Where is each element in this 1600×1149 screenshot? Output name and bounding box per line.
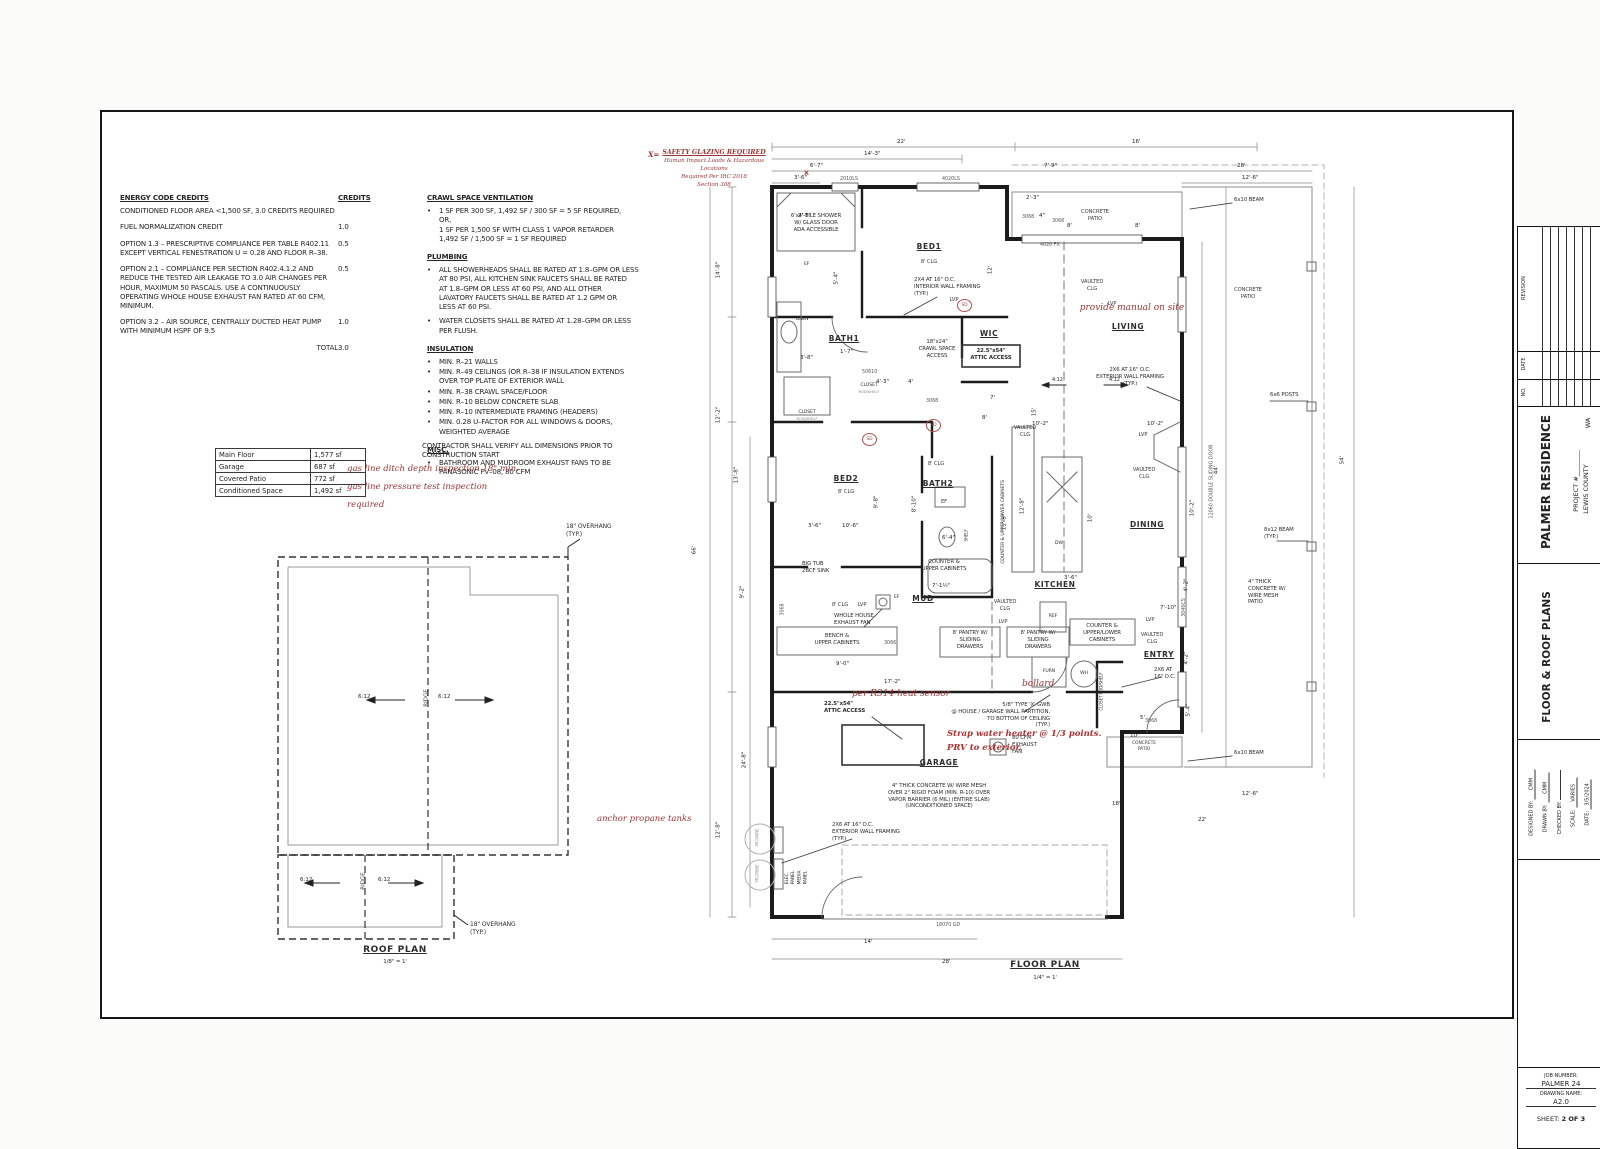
energy-code-credits-block: ENERGY CODE CREDITS CREDITS CONDITIONED …: [120, 194, 400, 360]
dimension-label: 8'-10": [911, 496, 917, 513]
dimension-label: 66': [691, 546, 697, 555]
energy-row: FUEL NORMALIZATION CREDIT 1.0: [120, 223, 400, 232]
sheet-value: 2 OF 3: [1562, 1115, 1586, 1123]
dimension-label: 22': [1198, 817, 1207, 823]
drawing-name-label: DRAWING NAME:: [1518, 1091, 1600, 1097]
dimension-label: 10': [1087, 514, 1093, 523]
area-label: Covered Patio: [216, 473, 311, 484]
dimension-label: 3'-6": [808, 523, 821, 529]
checked-by-value: [1560, 770, 1561, 800]
energy-row-text: OPTION 2.1 – COMPLIANCE PER SECTION R402…: [120, 265, 338, 311]
window-door-tag: 4020 FX: [1040, 243, 1060, 248]
dimension-label: 8': [1135, 223, 1140, 229]
date-value: 3/5/2024: [1585, 779, 1592, 809]
dimension-label: 10': [1130, 733, 1139, 739]
plumbing-title: PLUMBING: [427, 253, 677, 262]
revision-table-line: [1542, 227, 1543, 406]
titleblock-divider: [1518, 739, 1600, 740]
designed-by-label: DESIGNED BY:: [1529, 801, 1535, 836]
dimension-label: 4'-2": [1184, 578, 1190, 591]
dimension-label: 16': [1132, 139, 1141, 145]
smoke-detector-mark: SD: [862, 433, 877, 446]
window-door-tag: 3068: [1145, 719, 1157, 724]
insulation-item: MIN. R–10 INTERMEDIATE FRAMING (HEADERS): [439, 408, 598, 417]
table-row: Main Floor 1,577 sf: [216, 449, 365, 461]
dimension-label: 12'-2": [715, 407, 721, 424]
dimension-label: 4': [908, 379, 913, 385]
insulation-title: INSULATION: [427, 345, 677, 354]
energy-row-text: OPTION 3.2 – AIR SOURCE, CENTRALLY DUCTE…: [120, 318, 338, 336]
contractor-note-text: CONTRACTOR SHALL VERIFY ALL DIMENSIONS P…: [422, 442, 612, 459]
dimension-label: 6'-4": [942, 535, 955, 541]
bullet-marker: •: [427, 266, 439, 312]
gas-line-note-3: required: [347, 500, 384, 510]
bullet-marker: •: [427, 207, 439, 244]
energy-row: OPTION 3.2 – AIR SOURCE, CENTRALLY DUCTE…: [120, 318, 400, 336]
energy-row: OPTION 2.1 – COMPLIANCE PER SECTION R402…: [120, 265, 400, 311]
dimension-label: 12'-8": [1019, 498, 1025, 515]
revision-table-line: [1590, 227, 1591, 406]
drawing-name-value: A2.0: [1526, 1098, 1596, 1107]
checked-by-row: CHECKED BY:: [1557, 750, 1563, 854]
safety-glazing-x: X=: [648, 150, 659, 159]
revision-table-line: [1574, 227, 1575, 406]
window-door-tag: 3040CS: [1182, 598, 1187, 617]
job-number-value: PALMER 24: [1526, 1080, 1596, 1089]
dimension-label: 14'-8": [715, 262, 721, 279]
bullet-marker: •: [427, 418, 439, 436]
dimension-label: 3'-8": [800, 355, 813, 361]
roof-slope-label: 6:12: [378, 877, 390, 883]
roof-slope-label: 6:12: [300, 877, 312, 883]
roof-slope-label: 6:12: [358, 694, 370, 700]
dimension-label: 2'-8": [798, 213, 811, 219]
titleblock-divider: [1518, 1067, 1600, 1068]
bullet-marker: •: [427, 398, 439, 407]
dimension-label: 3'-6": [1064, 575, 1077, 581]
dimension-label: 10'-6": [842, 523, 859, 529]
smoke-detector-mark: SD: [926, 419, 941, 432]
bullet-marker: •: [427, 317, 439, 335]
dimension-layer: 22'16'14'-3"6'-7"7'-9"28'3'-6"12'-6"2'-3…: [692, 127, 1372, 997]
code-notes-block: CRAWL SPACE VENTILATION • 1 SF PER 300 S…: [427, 194, 677, 482]
window-door-tag: 3068: [926, 399, 938, 404]
drawn-by-label: DRAWN BY:: [1543, 804, 1549, 832]
floor-plan-scale: 1/4" = 1': [1033, 975, 1057, 982]
project-name: PALMER RESIDENCE: [1539, 407, 1553, 557]
energy-total-value: 3.0: [338, 344, 374, 353]
dimension-label: 18': [1112, 801, 1121, 807]
window-door-tag: 4020LS: [942, 177, 960, 182]
title-block: REVISION DATE NO. PALMER RESIDENCE PROJE…: [1517, 226, 1600, 1149]
dimension-label: 5'-4": [1186, 703, 1192, 716]
insulation-item: MIN. R–21 WALLS: [439, 358, 498, 367]
energy-row-text: CONDITIONED FLOOR AREA <1,500 SF, 3.0 CR…: [120, 207, 338, 216]
window-door-tag: 3068: [1022, 215, 1034, 220]
dimension-label: 15': [1031, 408, 1037, 417]
roof-plan: 6:12 6:12 RIDGE 6:12 6:12 RIDGE 18" OVER…: [270, 517, 600, 987]
energy-row-text: OPTION 1.3 – PRESCRIPTIVE COMPLIANCE PER…: [120, 240, 338, 258]
scale-value: VARIES: [1571, 778, 1578, 808]
revision-table-line: [1558, 227, 1559, 406]
smoke-detector-mark: SD: [957, 299, 972, 312]
dimension-label: 28': [1237, 163, 1246, 169]
area-table: Main Floor 1,577 sf Garage 687 sf Covere…: [215, 448, 366, 497]
contractor-note: CONTRACTOR SHALL VERIFY ALL DIMENSIONS P…: [422, 442, 612, 460]
credits-column-header: CREDITS: [338, 194, 371, 203]
energy-row: OPTION 1.3 – PRESCRIPTIVE COMPLIANCE PER…: [120, 240, 400, 258]
floor-plan: BED1 8' CLG LVP BATH1 WIC 22.5"x54" ATTI…: [692, 127, 1372, 997]
date-row: DATE: 3/5/2024: [1585, 751, 1592, 855]
county-label: LEWIS COUNTY: [1582, 449, 1590, 529]
date-column-header: DATE: [1521, 352, 1527, 376]
dimension-label: 8': [1067, 223, 1072, 229]
titleblock-divider: [1518, 563, 1600, 564]
drawing-sheet: ENERGY CODE CREDITS CREDITS CONDITIONED …: [100, 110, 1514, 1019]
state-label: WA: [1584, 411, 1592, 435]
dimension-label: 7'-9": [1044, 163, 1057, 169]
safety-glazing-x-mark: X: [804, 169, 809, 177]
table-row: Garage 687 sf: [216, 461, 365, 473]
dimension-label: 17'-2": [884, 679, 901, 685]
dimension-label: 12': [987, 266, 993, 275]
sheet-number: SHEET: 2 OF 3: [1518, 1115, 1600, 1123]
dimension-label: 14': [864, 939, 873, 945]
window-door-tag: 2010LS: [840, 177, 858, 182]
bullet-marker: •: [427, 358, 439, 367]
insulation-item: MIN. R–10 BELOW CONCRETE SLAB: [439, 398, 558, 407]
project-number: PROJECT #________: [1572, 411, 1580, 551]
area-label: Garage: [216, 461, 311, 472]
dimension-label: 10'-2": [1147, 421, 1164, 427]
dimension-label: 11'-8": [1001, 514, 1007, 531]
energy-row: CONDITIONED FLOOR AREA <1,500 SF, 3.0 CR…: [120, 207, 400, 216]
revision-table-line: [1518, 379, 1600, 380]
energy-row-credit: [338, 207, 374, 216]
insulation-item: MIN. R–38 CRAWL SPACE/FLOOR: [439, 388, 547, 397]
dimension-label: 5'-4": [834, 271, 840, 284]
insulation-item: MIN. 0.28 U–FACTOR FOR ALL WINDOWS & DOO…: [439, 418, 612, 436]
energy-credits-title: ENERGY CODE CREDITS: [120, 194, 338, 203]
date-label: DATE:: [1585, 811, 1591, 826]
area-label: Main Floor: [216, 449, 311, 460]
roof-ridge-label: RIDGE: [361, 872, 367, 889]
window-door-tag: 50610: [862, 370, 877, 375]
dimension-label: 4'-3": [876, 379, 889, 385]
energy-row-credit: 1.0: [338, 318, 374, 336]
dimension-label: 22': [897, 139, 906, 145]
dimension-label: 6'-7": [810, 163, 823, 169]
revision-table-line: [1550, 227, 1551, 406]
sheet-label: SHEET:: [1537, 1115, 1560, 1123]
plumbing-item: WATER CLOSETS SHALL BE RATED AT 1.28–GPM…: [439, 317, 631, 335]
dimension-label: 54': [1339, 456, 1345, 465]
revision-table-line: [1582, 227, 1583, 406]
roof-plan-title: ROOF PLAN: [363, 945, 427, 956]
dimension-label: 9'-2": [740, 585, 746, 598]
bullet-marker: •: [427, 388, 439, 397]
dimension-label: 9'-0": [836, 661, 849, 667]
roof-overhang-note: 18" OVERHANG (TYP.): [470, 921, 516, 936]
drawn-by-value: CMM: [1543, 773, 1550, 803]
energy-row-credit: 1.0: [338, 223, 374, 232]
floor-plan-title: FLOOR PLAN: [1010, 960, 1080, 971]
window-door-tag: 3068: [1052, 219, 1064, 224]
gas-line-note-1: gas line ditch depth inspection 18" min.: [347, 464, 519, 474]
drawn-by-row: DRAWN BY: CMM: [1543, 751, 1550, 855]
plumbing-item: ALL SHOWERHEADS SHALL BE RATED AT 1.8–GP…: [439, 266, 639, 312]
dimension-label: 1'-7": [840, 349, 853, 355]
dimension-label: 14'-3": [864, 151, 881, 157]
sheet-title: FLOOR & ROOF PLANS: [1541, 582, 1553, 732]
dimension-label: 7': [990, 395, 995, 401]
bullet-marker: •: [427, 368, 439, 386]
dimension-label: 7'-10": [1160, 605, 1177, 611]
crawl-item: 1 SF PER 300 SF, 1,492 SF / 300 SF = 5 S…: [439, 207, 621, 244]
dimension-label: 12'-8": [715, 822, 721, 839]
table-row: Covered Patio 772 sf: [216, 473, 365, 485]
scale-row: SCALE: VARIES: [1571, 751, 1578, 855]
area-value: 1,577 sf: [311, 449, 365, 460]
dimension-label: 28': [942, 959, 951, 965]
dimension-label: 13'-8": [733, 467, 739, 484]
energy-total-label: TOTAL: [120, 344, 338, 353]
roof-overhang-note: 18" OVERHANG (TYP.): [566, 523, 612, 538]
roof-plan-scale: 1/8" = 1': [383, 959, 407, 966]
dimension-label: 24'-8": [741, 752, 747, 769]
area-label: Conditioned Space: [216, 485, 311, 496]
dimension-label: 2'-3": [1026, 195, 1039, 201]
energy-row-credit: 0.5: [338, 240, 374, 258]
window-door-tag: 12060 DOUBLE SLIDING DOOR: [1209, 445, 1214, 519]
anchor-propane-note: anchor propane tanks: [597, 814, 691, 824]
no-column-header: NO.: [1521, 385, 1527, 399]
energy-row-credit: 0.5: [338, 265, 374, 311]
table-row: Conditioned Space 1,492 sf: [216, 485, 365, 496]
dimension-label: 12'-6": [1242, 791, 1259, 797]
revision-table-line: [1518, 351, 1600, 352]
job-info: JOB NUMBER: PALMER 24 DRAWING NAME: A2.0…: [1518, 1073, 1600, 1123]
dimension-label: 9'-8": [874, 495, 880, 508]
dimension-label: 12'-6": [1242, 175, 1259, 181]
dimension-label: 4": [1039, 213, 1045, 219]
crawl-title: CRAWL SPACE VENTILATION: [427, 194, 677, 203]
checked-by-label: CHECKED BY:: [1557, 801, 1563, 834]
bullet-marker: •: [427, 408, 439, 417]
dimension-label: 8': [982, 415, 987, 421]
energy-total-row: TOTAL 3.0: [120, 344, 400, 353]
roof-plan-linework: [270, 517, 600, 987]
window-door-tag: 18070 GD: [936, 923, 960, 928]
designed-by-value: CMM: [1529, 769, 1536, 799]
insulation-item: MIN. R–49 CEILINGS (OR R–38 IF INSULATIO…: [439, 368, 624, 386]
dimension-label: 7'-1½": [932, 583, 950, 589]
roof-ridge-label: RIDGE: [424, 689, 430, 706]
job-number-label: JOB NUMBER:: [1518, 1073, 1600, 1079]
roof-slope-label: 6:12: [438, 694, 450, 700]
energy-row-text: FUEL NORMALIZATION CREDIT: [120, 223, 338, 232]
titleblock-divider: [1518, 859, 1600, 860]
dimension-label: 4'-2": [1184, 651, 1190, 664]
dimension-label: 10'-2": [1032, 421, 1049, 427]
titleblock-divider: [1518, 406, 1600, 407]
window-door-tag: 3066: [884, 641, 896, 646]
scale-label: SCALE:: [1571, 809, 1577, 827]
revision-table-line: [1566, 227, 1567, 406]
dimension-label: 10'-2": [1189, 500, 1195, 517]
window-door-tag: 3068: [781, 603, 786, 615]
revision-column-header: REVISION: [1521, 264, 1527, 312]
designed-by-row: DESIGNED BY: CMM: [1529, 751, 1536, 855]
gas-line-note-2: gas line pressure test inspection: [347, 482, 487, 492]
